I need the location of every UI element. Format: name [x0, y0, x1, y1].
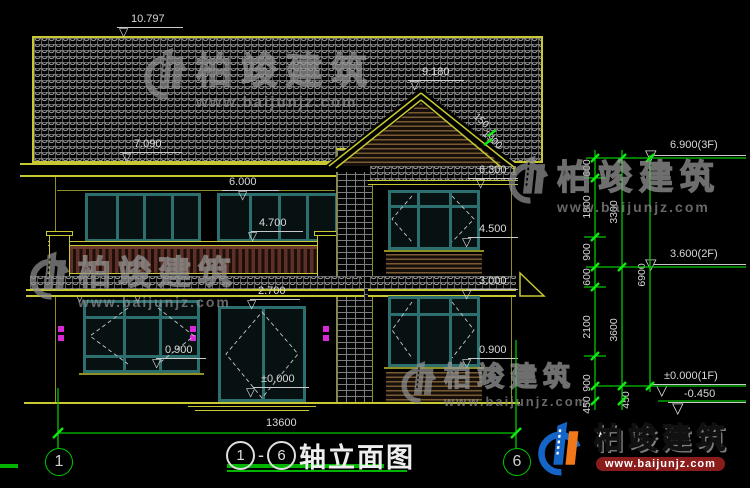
brand-logo: 柏竣建筑 www.baijunjz.com	[534, 415, 730, 481]
watermark-site: www.baijunjz.com	[78, 294, 238, 310]
dim-door-top: 2.700	[258, 285, 286, 297]
watermark-mid-right: 柏竣建筑 www.baijunjz.com	[505, 150, 721, 215]
title-dash: -	[258, 445, 264, 466]
watermark-logo-icon	[140, 42, 196, 102]
watermark-brand: 柏竣建筑	[444, 355, 588, 394]
title-axis-to: 6	[267, 441, 296, 470]
watermark-logo-icon	[505, 150, 557, 206]
drawing-title: 1 - 6 轴立面图	[226, 436, 415, 475]
title-axis-from: 1	[226, 441, 255, 470]
watermark-top: 柏竣建筑 www.baijunjz.com	[140, 42, 376, 111]
level-triangle-icon: ▽	[247, 298, 256, 310]
watermark-brand: 柏竣建筑	[196, 42, 376, 94]
watermark-site: www.baijunjz.com	[444, 394, 588, 409]
title-text: 轴立面图	[299, 436, 415, 475]
side-canopy-wedge	[520, 273, 544, 296]
watermark-site: www.baijunjz.com	[557, 199, 721, 215]
watermark-brand: 柏竣建筑	[78, 246, 238, 294]
dim-line	[250, 299, 300, 300]
brand-name: 柏竣建筑	[594, 415, 730, 457]
elevation-drawing: 10.797 ▽ 7.090 ▽ 9.180 ▽ 6.000 ▽ 6.300 ▽…	[0, 0, 750, 488]
watermark-mid-left: 柏竣建筑 www.baijunjz.com	[26, 246, 238, 310]
watermark-brand: 柏竣建筑	[557, 150, 721, 199]
watermark-bottom: 柏竣建筑 www.baijunjz.com	[398, 355, 588, 409]
brand-site: www.baijunjz.com	[596, 457, 725, 471]
brand-logo-icon	[534, 415, 590, 481]
watermark-logo-icon	[398, 355, 444, 407]
watermark-logo-icon	[26, 246, 78, 302]
watermark-site: www.baijunjz.com	[196, 94, 376, 111]
